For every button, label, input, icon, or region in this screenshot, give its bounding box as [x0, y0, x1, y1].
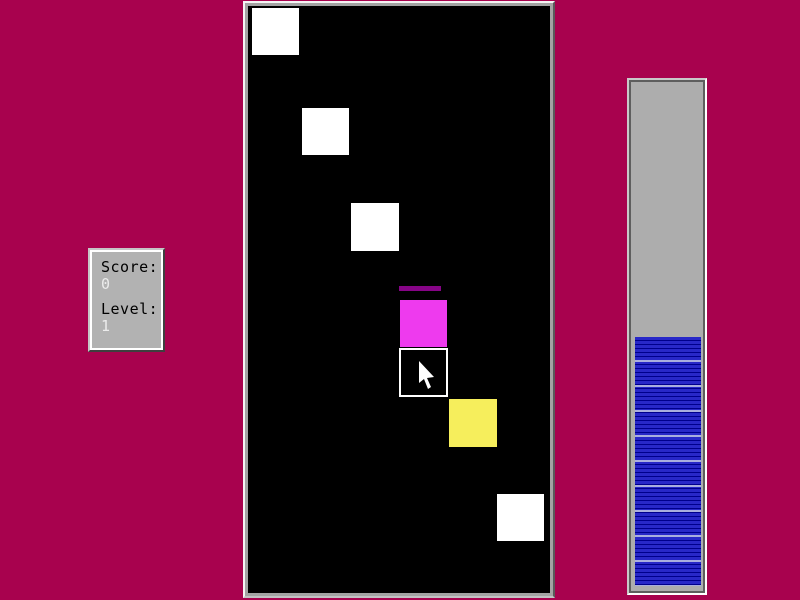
- tile-white-4[interactable]: [497, 494, 544, 541]
- timer-bar-frame: [627, 78, 707, 595]
- timer-bar-fill: [635, 337, 701, 586]
- tile-white-3[interactable]: [351, 203, 399, 251]
- tile-selected[interactable]: [399, 348, 448, 397]
- game-board[interactable]: [245, 3, 553, 596]
- tile-trail-artifact: [399, 286, 441, 291]
- score-label: Score:: [101, 259, 163, 276]
- tile-white-2[interactable]: [302, 108, 349, 155]
- timer-bar-track: [631, 82, 703, 591]
- tile-yellow[interactable]: [449, 399, 497, 447]
- level-label: Level:: [101, 301, 163, 318]
- score-panel: Score: 0 Level: 1: [88, 248, 165, 352]
- game-screen: Score: 0 Level: 1: [0, 0, 800, 600]
- level-value: 1: [101, 318, 163, 335]
- tile-white-1[interactable]: [252, 8, 299, 55]
- tile-magenta[interactable]: [400, 300, 447, 347]
- game-board-frame: [243, 1, 555, 598]
- score-value: 0: [101, 276, 163, 293]
